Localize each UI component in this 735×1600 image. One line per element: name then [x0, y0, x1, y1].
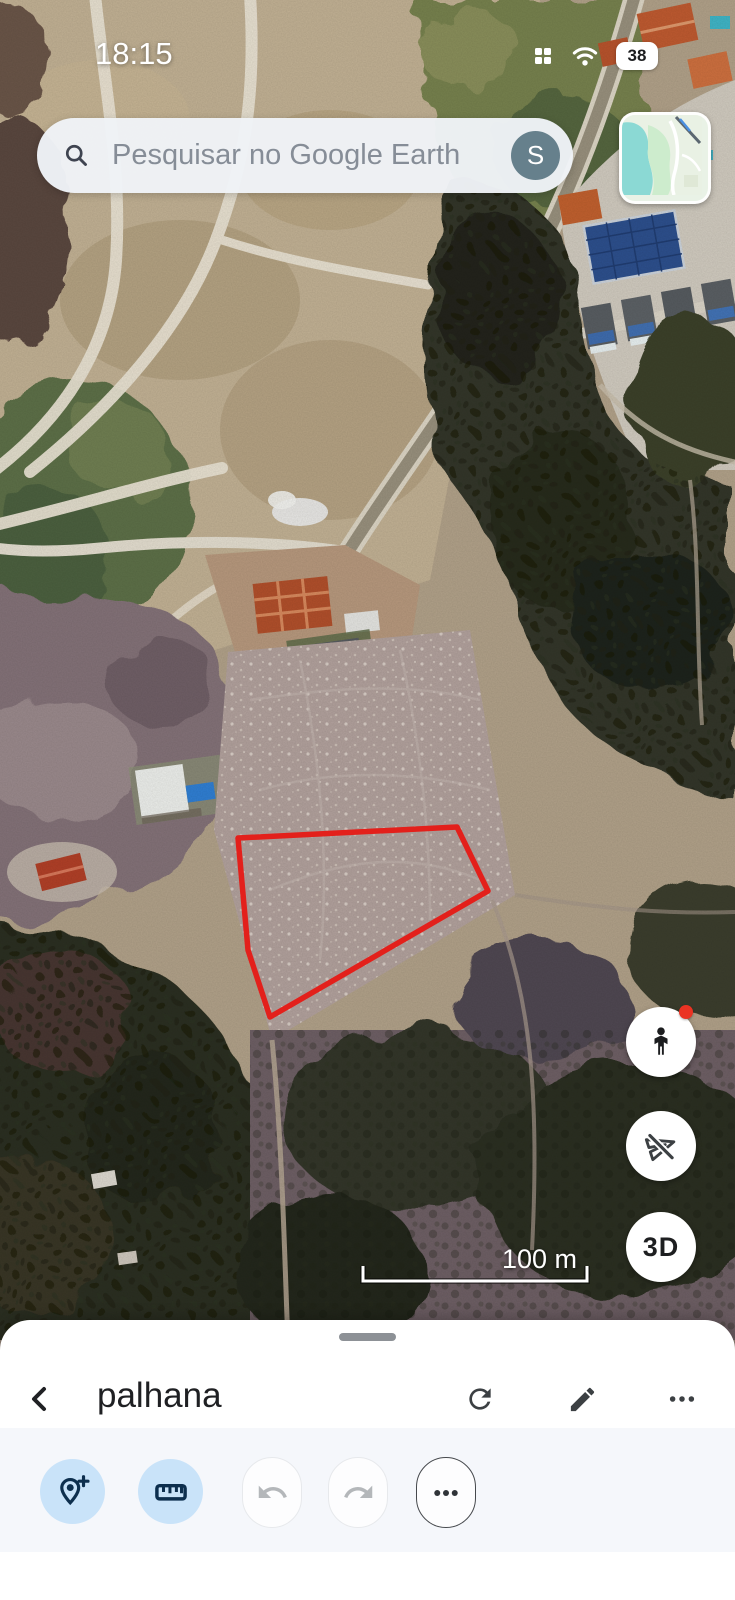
- street-view-badge: [679, 1005, 693, 1019]
- account-avatar[interactable]: S: [511, 131, 560, 180]
- more-tools-icon: [431, 1478, 461, 1508]
- account-initial: S: [527, 140, 544, 171]
- drag-handle[interactable]: [339, 1333, 396, 1341]
- search-icon: [63, 142, 90, 169]
- pegman-icon: [644, 1025, 678, 1059]
- back-button[interactable]: [22, 1381, 58, 1417]
- add-placemark-button[interactable]: [40, 1459, 105, 1524]
- plane-off-icon: [643, 1128, 679, 1164]
- map-thumbnail-art: [622, 115, 702, 195]
- map-viewport[interactable]: 18:15 38: [0, 0, 735, 1340]
- search-bar[interactable]: Pesquisar no Google Earth S: [37, 118, 573, 193]
- ruler-icon: [153, 1474, 189, 1510]
- refresh-icon: [464, 1383, 496, 1415]
- tools-toolbar: [0, 1428, 735, 1552]
- more-tools-button[interactable]: [416, 1457, 476, 1528]
- search-placeholder: Pesquisar no Google Earth: [112, 139, 511, 172]
- undo-icon: [256, 1476, 289, 1509]
- project-title: palhana: [97, 1376, 222, 1416]
- refresh-button[interactable]: [462, 1381, 498, 1417]
- measure-button[interactable]: [138, 1459, 203, 1524]
- ellipsis-icon: [667, 1384, 697, 1414]
- bottom-sheet: palhana: [0, 1320, 735, 1600]
- chevron-left-icon: [24, 1383, 56, 1415]
- map-style-thumbnail[interactable]: [619, 112, 711, 204]
- pencil-icon: [567, 1384, 598, 1415]
- 3d-label: 3D: [643, 1232, 680, 1263]
- redo-button[interactable]: [328, 1457, 388, 1528]
- redo-icon: [342, 1476, 375, 1509]
- edit-button[interactable]: [564, 1381, 600, 1417]
- more-options-button[interactable]: [664, 1381, 700, 1417]
- add-placemark-icon: [55, 1474, 91, 1510]
- 3d-toggle-button[interactable]: 3D: [626, 1212, 696, 1282]
- undo-button[interactable]: [242, 1457, 302, 1528]
- fly-disabled-button[interactable]: [626, 1111, 696, 1181]
- google-earth-app: 18:15 38: [0, 0, 735, 1600]
